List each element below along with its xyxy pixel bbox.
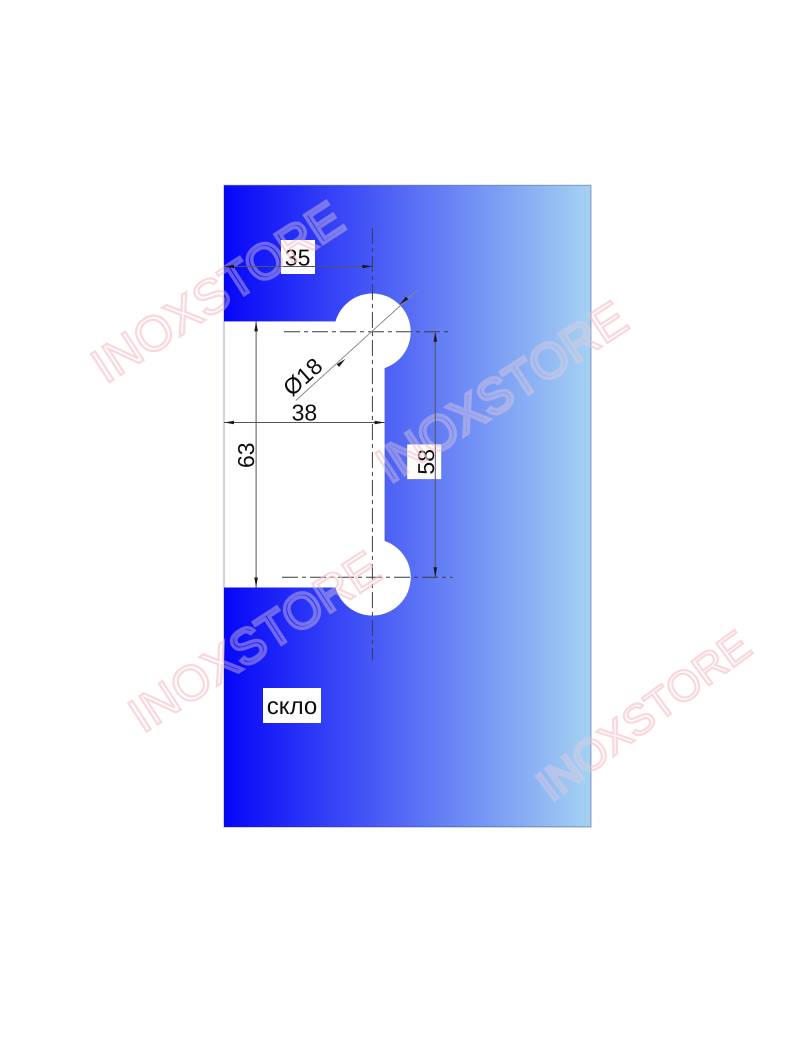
svg-text:38: 38 <box>292 400 318 426</box>
svg-text:скло: скло <box>267 693 317 720</box>
svg-text:63: 63 <box>233 442 259 468</box>
